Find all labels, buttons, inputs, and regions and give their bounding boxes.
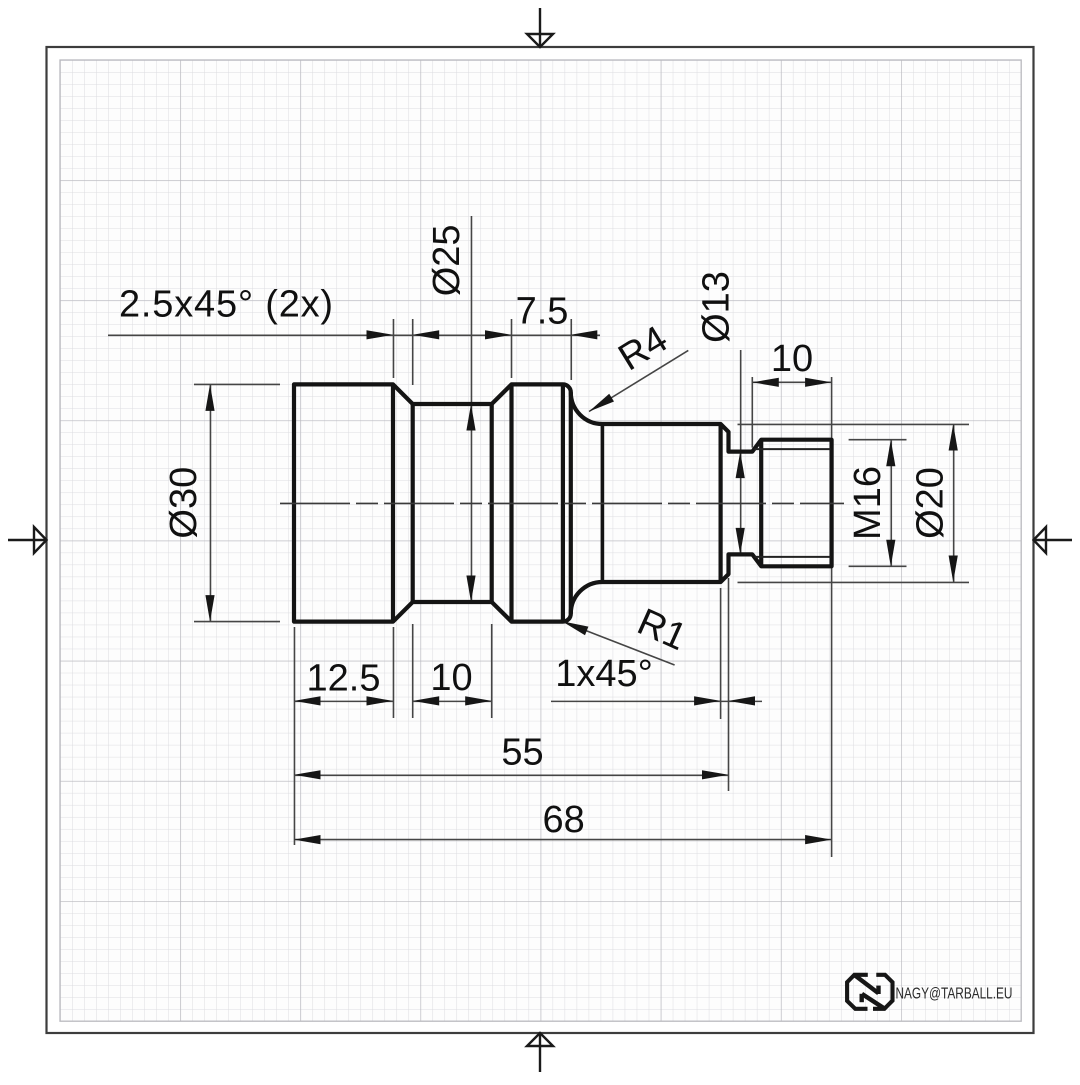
svg-text:Ø13: Ø13 — [696, 271, 738, 343]
svg-text:55: 55 — [501, 732, 543, 774]
svg-text:68: 68 — [543, 799, 585, 841]
svg-text:10: 10 — [430, 657, 472, 699]
svg-text:1x45°: 1x45° — [555, 653, 653, 695]
svg-text:7.5: 7.5 — [516, 291, 569, 333]
svg-text:10: 10 — [771, 338, 813, 380]
svg-text:Ø25: Ø25 — [426, 224, 468, 296]
svg-text:12.5: 12.5 — [307, 658, 381, 700]
svg-text:Ø20: Ø20 — [910, 467, 952, 539]
svg-text:2.5x45° (2x): 2.5x45° (2x) — [119, 284, 334, 326]
svg-text:M16: M16 — [847, 466, 889, 540]
svg-text:Ø30: Ø30 — [163, 467, 205, 539]
svg-text:NAGY@TARBALL.EU: NAGY@TARBALL.EU — [896, 984, 1013, 1002]
